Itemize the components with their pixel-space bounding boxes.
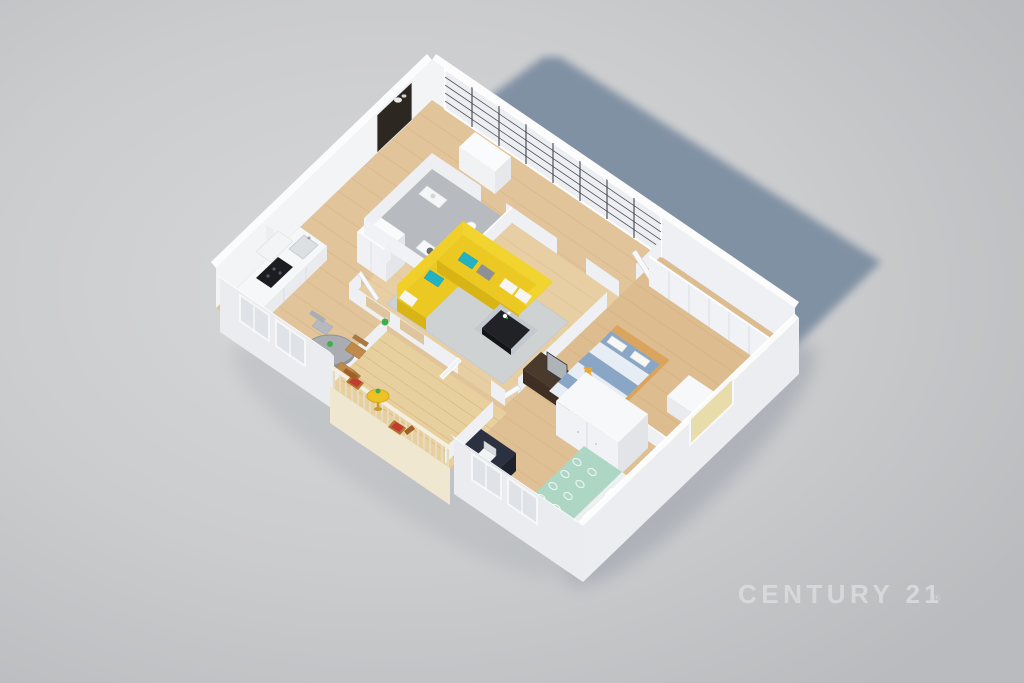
table-plant [327, 341, 333, 347]
potted-plant [382, 319, 389, 326]
registered-trademark-symbol: ® [934, 593, 941, 603]
teddy-bear-ear [590, 367, 593, 370]
entry-door-decal [394, 97, 402, 102]
balcony-table-base [374, 407, 382, 411]
watermark: CENTURY 21 ® [738, 579, 943, 609]
scene-canvas: CENTURY 21 ® [0, 0, 1024, 683]
flower [508, 312, 511, 315]
wardrobe-handle [577, 431, 579, 433]
burner [278, 271, 281, 274]
teddy-bear-ear [584, 367, 587, 370]
faucet [308, 237, 311, 240]
vanity-sink [431, 194, 436, 199]
wardrobe-handle [595, 443, 597, 445]
flower-stem [506, 317, 508, 319]
burner [272, 267, 275, 270]
balcony-plant [376, 389, 381, 394]
floor-plan-render: CENTURY 21 ® [0, 0, 1024, 683]
brand-watermark-text: CENTURY 21 [738, 579, 943, 609]
entry-door-decal [402, 94, 407, 97]
burner [266, 274, 269, 277]
